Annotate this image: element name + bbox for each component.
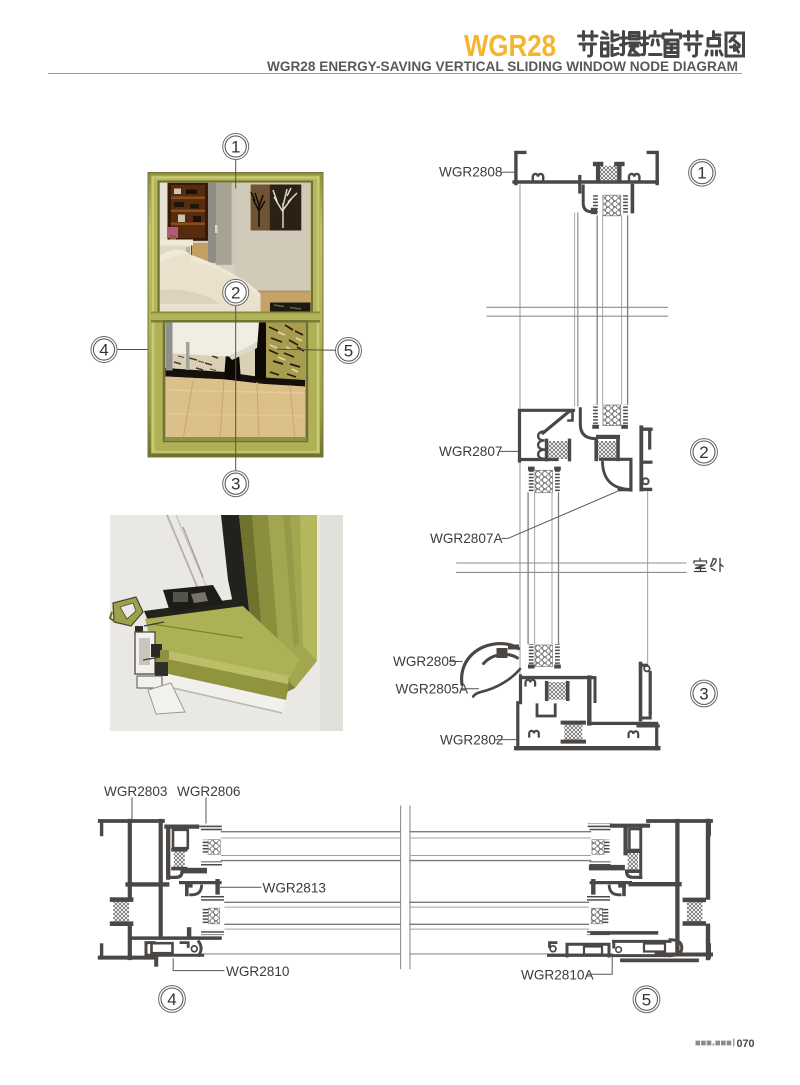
svg-text:WGR2810A: WGR2810A <box>521 968 594 983</box>
svg-text:1: 1 <box>697 164 706 183</box>
svg-text:5: 5 <box>642 990 651 1009</box>
svg-text:5: 5 <box>344 342 353 361</box>
svg-text:3: 3 <box>699 685 708 704</box>
svg-text:3: 3 <box>231 475 240 494</box>
svg-text:WGR2807A: WGR2807A <box>430 531 503 546</box>
svg-text:WGR2810: WGR2810 <box>226 964 290 979</box>
svg-text:4: 4 <box>167 990 176 1009</box>
svg-text:WGR2806: WGR2806 <box>177 784 240 799</box>
svg-text:WGR2803: WGR2803 <box>104 784 167 799</box>
svg-text:2: 2 <box>231 283 240 302</box>
svg-text:WGR2807: WGR2807 <box>439 444 502 459</box>
svg-text:WGR2813: WGR2813 <box>263 880 326 895</box>
svg-text:1: 1 <box>231 138 240 157</box>
svg-text:WGR2805: WGR2805 <box>393 654 456 669</box>
svg-text:WGR2802: WGR2802 <box>440 732 503 747</box>
svg-text:WGR28 ENERGY-SAVING VERTICAL S: WGR28 ENERGY-SAVING VERTICAL SLIDING WIN… <box>267 58 738 74</box>
svg-text:4: 4 <box>99 341 108 360</box>
svg-text:WGR2805A: WGR2805A <box>396 681 469 696</box>
svg-text:2: 2 <box>699 443 708 462</box>
svg-text:070: 070 <box>737 1038 755 1050</box>
svg-text:WGR2808: WGR2808 <box>439 165 502 180</box>
